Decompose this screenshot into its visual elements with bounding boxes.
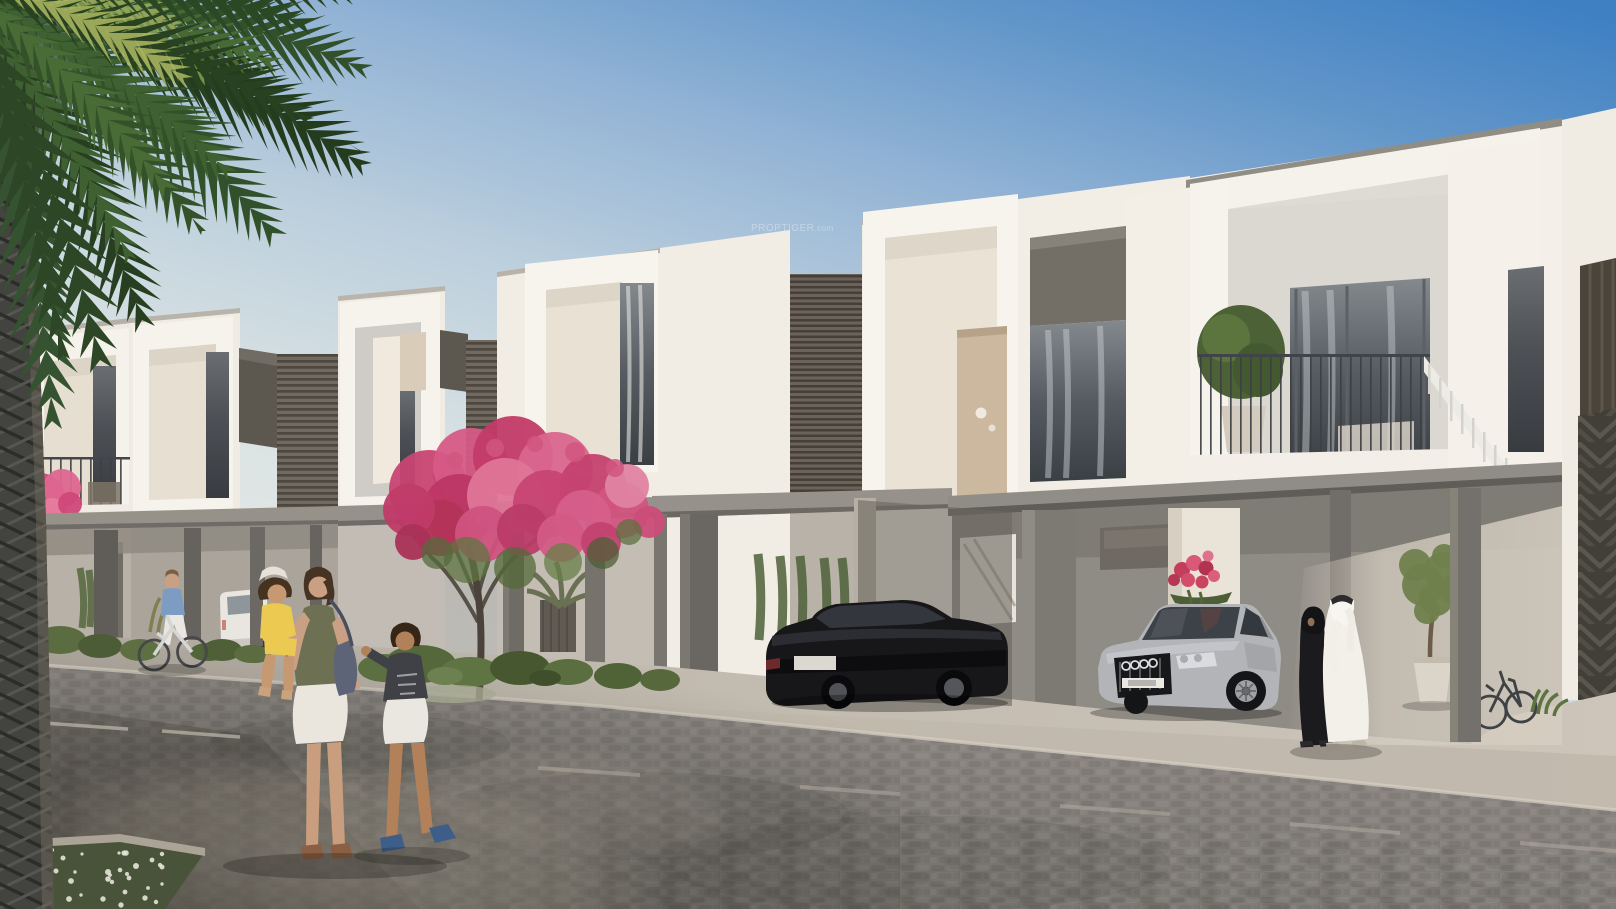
svg-text:PROPTIGER.com: PROPTIGER.com — [751, 223, 834, 234]
